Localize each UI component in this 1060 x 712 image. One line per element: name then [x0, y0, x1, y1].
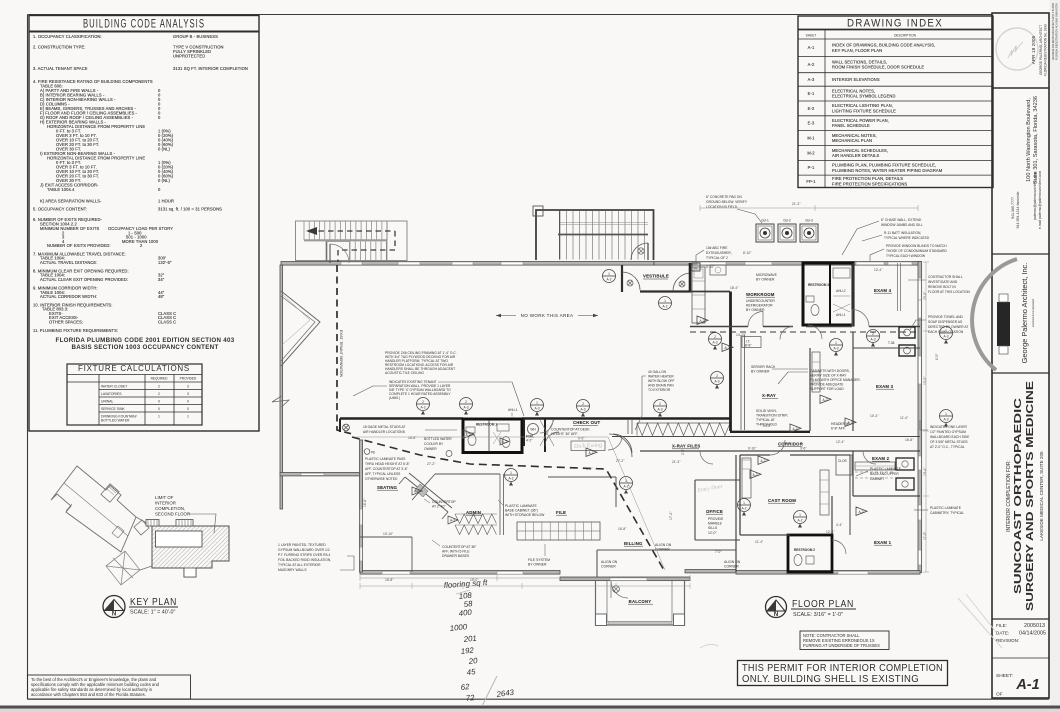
svg-text:SERVICE SINK: SERVICE SINK: [101, 407, 125, 411]
svg-text:A-2: A-2: [798, 519, 803, 523]
svg-text:MARBLE: MARBLE: [708, 522, 723, 526]
svg-text:2: 2: [465, 400, 467, 404]
svg-text:A-3: A-3: [658, 408, 663, 412]
svg-text:SURGERY AND SPORTS MEDICINE: SURGERY AND SPORTS MEDICINE: [1024, 381, 1036, 611]
svg-text:SUNCOAST ORTHOPAEDIC: SUNCOAST ORTHOPAEDIC: [1012, 397, 1024, 594]
svg-text:WINDOW JAMBS AND SILL: WINDOW JAMBS AND SILL: [881, 223, 923, 227]
svg-text:AFF, TYPICAL UNLESS: AFF, TYPICAL UNLESS: [365, 472, 401, 476]
svg-text:A-2: A-2: [742, 507, 747, 511]
svg-text:132’-5": 132’-5": [158, 260, 172, 265]
svg-text:12'-0": 12'-0": [708, 531, 717, 535]
svg-text:2: 2: [716, 374, 718, 378]
svg-text:Licensed & Incorporated: Licensed & Incorporated: [1031, 298, 1035, 327]
svg-text:(U465.): (U465.): [389, 396, 400, 400]
svg-text:SCALE: 3/16" = 1'-0": SCALE: 3/16" = 1'-0": [793, 612, 843, 618]
svg-text:ADMIN: ADMIN: [466, 510, 481, 515]
svg-text:6" CONCRETE PAD ON: 6" CONCRETE PAD ON: [706, 195, 742, 199]
svg-text:12'-4": 12'-4": [826, 530, 835, 534]
svg-text:2. CONSTRUCTION TYPE:: 2. CONSTRUCTION TYPE:: [33, 45, 86, 50]
svg-text:1: 1: [799, 513, 801, 517]
svg-text:CABINETS WITH DOORS,: CABINETS WITH DOORS,: [810, 369, 850, 373]
svg-text:CONTRACTOR SHALL: CONTRACTOR SHALL: [928, 275, 963, 279]
svg-text:0: 0: [158, 400, 160, 404]
svg-text:CORNER: CORNER: [724, 565, 739, 569]
svg-text:3'-0": 3'-0": [586, 467, 593, 471]
svg-text:LIMIT OF: LIMIT OF: [155, 495, 174, 500]
svg-text:16'-8": 16'-8": [905, 438, 914, 442]
svg-text:REVISION:: REVISION:: [996, 638, 1019, 643]
svg-text:A-2: A-2: [793, 427, 798, 431]
svg-text:WORKROOM: WORKROOM: [746, 292, 775, 297]
svg-text:OTHER SPACES:: OTHER SPACES:: [49, 319, 83, 324]
svg-text:8'-8": 8'-8": [745, 344, 751, 348]
svg-text:EXAM 4: EXAM 4: [874, 288, 892, 293]
svg-text:19'-0": 19'-0": [470, 578, 479, 582]
svg-text:Suite 301, Sarasota, Florida,: Suite 301, Sarasota, Florida, 34236: [1033, 96, 1039, 184]
svg-text:LOCATION IN FIELD.: LOCATION IN FIELD.: [706, 205, 738, 209]
svg-text:TYPICAL OF 2: TYPICAL OF 2: [706, 256, 728, 260]
svg-text:OTHERWISE NOTED: OTHERWISE NOTED: [365, 477, 398, 481]
svg-text:TO EXTERIOR: TO EXTERIOR: [648, 388, 671, 392]
svg-text:FIXTURE CALCULATIONS: FIXTURE CALCULATIONS: [78, 364, 190, 373]
svg-text:TYPICAL EACH WINDOW: TYPICAL EACH WINDOW: [886, 254, 926, 258]
svg-text:GROUND BELOW. VERIFY: GROUND BELOW. VERIFY: [706, 200, 748, 204]
svg-text:palermo@palermoarchitect.com: palermo@palermoarchitect.com: [1033, 172, 1037, 220]
svg-text:REMOVE BOLT IN: REMOVE BOLT IN: [928, 285, 956, 289]
svg-text:A-2: A-2: [761, 459, 766, 463]
svg-text:4'-2": 4'-2": [526, 439, 532, 443]
svg-text:0 (NL): 0 (NL): [158, 147, 171, 152]
svg-text:CLOS: CLOS: [838, 459, 847, 463]
svg-text:DRAWER BASES: DRAWER BASES: [442, 554, 470, 558]
svg-text:27'-2": 27'-2": [616, 459, 625, 463]
svg-text:GEORGE PALERMO, ARCHITECT: GEORGE PALERMO, ARCHITECT: [1039, 25, 1043, 75]
svg-text:VERIFY SIZE OF X-RAY: VERIFY SIZE OF X-RAY: [810, 374, 847, 378]
svg-text:8'-10": 8'-10": [743, 251, 752, 255]
svg-text:1: 1: [945, 329, 947, 333]
svg-text:CAST ROOM: CAST ROOM: [768, 498, 796, 503]
svg-text:TYPICAL AT: TYPICAL AT: [756, 418, 775, 422]
svg-text:941.954.4214 facsimile: 941.954.4214 facsimile: [1016, 192, 1020, 229]
svg-text:APR 18 2005: APR 18 2005: [1031, 35, 1037, 64]
svg-text:A-3: A-3: [581, 408, 586, 412]
svg-text:PLASTIC LAMINATE PASS: PLASTIC LAMINATE PASS: [365, 457, 406, 461]
svg-text:16'-8": 16'-8": [363, 498, 367, 507]
svg-text:400: 400: [458, 608, 473, 618]
svg-text:3131 sq. ft. / 100 = 31 PERSON: 3131 sq. ft. / 100 = 31 PERSONS: [158, 207, 222, 212]
svg-text:HEIGHT: 30" AFF.: HEIGHT: 30" AFF.: [551, 432, 578, 436]
svg-text:UNPROTECTED: UNPROTECTED: [173, 54, 205, 59]
svg-text:RESTROOM 3: RESTROOM 3: [808, 283, 829, 287]
svg-text:23'-0": 23'-0": [923, 291, 927, 300]
svg-text:2005013: 2005013: [1024, 623, 1045, 629]
svg-text:BY OWNER: BY OWNER: [751, 370, 770, 374]
svg-text:LIGHTING FIXTURE SCHEDULE: LIGHTING FIXTURE SCHEDULE: [832, 108, 896, 113]
svg-text:AHU-2: AHU-2: [836, 289, 846, 293]
svg-text:BALCONY: BALCONY: [629, 599, 652, 604]
svg-text:WITH BLOW OFF: WITH BLOW OFF: [648, 379, 675, 383]
svg-text:11'-4": 11'-4": [900, 416, 909, 420]
svg-text:0 (NL): 0 (NL): [158, 178, 171, 183]
svg-text:DESCRIPTION: DESCRIPTION: [894, 34, 916, 38]
svg-text:A-3: A-3: [450, 519, 455, 523]
svg-text:BASE AND UPPER: BASE AND UPPER: [870, 472, 899, 476]
svg-text:72: 72: [465, 693, 475, 703]
svg-text:EXAM 1: EXAM 1: [874, 540, 892, 545]
svg-text:GROUP B - BUSINESS: GROUP B - BUSINESS: [173, 34, 218, 39]
svg-text:3: 3: [187, 392, 189, 396]
svg-text:17'-4": 17'-4": [669, 511, 673, 520]
svg-text:MINIMUM NUMBER OF EXITS: MINIMUM NUMBER OF EXITS: [40, 226, 100, 231]
svg-text:0: 0: [187, 407, 189, 411]
svg-text:COUNTERTOP AT 36": COUNTERTOP AT 36": [442, 545, 477, 549]
svg-text:SCALE: 1" = 40'-0": SCALE: 1" = 40'-0": [130, 610, 176, 616]
svg-text:192: 192: [460, 646, 475, 656]
svg-text:16'-8": 16'-8": [385, 578, 394, 582]
svg-text:BILLING: BILLING: [624, 541, 643, 546]
svg-text:FILE:: FILE:: [996, 623, 1007, 628]
svg-text:FLORIDA PLUMBING CODE 2001 EDI: FLORIDA PLUMBING CODE 2001 EDITION SECTI…: [56, 337, 235, 344]
svg-text:A-3: A-3: [808, 77, 815, 82]
svg-text:ALIGN ON: ALIGN ON: [601, 560, 618, 564]
svg-text:OF: OF: [996, 692, 1003, 698]
svg-text:FILE SYSTEM: FILE SYSTEM: [528, 558, 550, 562]
svg-text:GU-2: GU-2: [783, 219, 791, 223]
svg-text:ALIGN ON: ALIGN ON: [655, 543, 672, 547]
svg-text:BOTTLED WATER: BOTTLED WATER: [424, 437, 452, 441]
svg-text:THOSE OF CONDOMINIUM STANDARD: THOSE OF CONDOMINIUM STANDARD: [886, 249, 948, 253]
svg-text:10'-4": 10'-4": [870, 414, 879, 418]
svg-text:2: 2: [158, 385, 160, 389]
svg-text:A-3: A-3: [421, 406, 426, 410]
svg-text:LAKESIDE MEDICAL CENTER, SUITE: LAKESIDE MEDICAL CENTER, SUITE 205: [1039, 451, 1044, 541]
svg-text:A-2: A-2: [589, 451, 594, 455]
svg-text:1: 1: [187, 415, 189, 419]
svg-text:ALIGN ON: ALIGN ON: [724, 560, 741, 564]
svg-text:NO WORK THIS AREA: NO WORK THIS AREA: [521, 313, 574, 318]
svg-text:CABINETRY, TYPICAL: CABINETRY, TYPICAL: [930, 511, 964, 515]
svg-text:FILMS WITH OFFICE MANAGER.: FILMS WITH OFFICE MANAGER.: [810, 378, 861, 382]
svg-text:PROVIDE ADEQUATE: PROVIDE ADEQUATE: [810, 383, 844, 387]
svg-text:3131 SQ FT. INTERIOR COMPLETIO: 3131 SQ FT. INTERIOR COMPLETION: [173, 66, 248, 71]
svg-text:10'-4": 10'-4": [923, 467, 927, 476]
svg-text:INTERIOR: INTERIOR: [155, 501, 176, 506]
svg-text:EXAM 2: EXAM 2: [872, 456, 890, 461]
svg-text:21'-3": 21'-3": [792, 202, 801, 206]
svg-text:9'-10": 9'-10": [748, 447, 757, 451]
svg-text:1000: 1000: [449, 622, 468, 633]
svg-text:A-3: A-3: [713, 341, 718, 345]
svg-text:A-3: A-3: [871, 338, 876, 342]
svg-text:AND DRAIN PAN: AND DRAIN PAN: [648, 384, 674, 388]
svg-text:E-1: E-1: [808, 91, 815, 96]
svg-text:BASE CABINET (36"): BASE CABINET (36"): [505, 509, 538, 513]
svg-text:1: 1: [608, 272, 610, 276]
svg-text:PLUMBING NOTES, WATER HEATER P: PLUMBING NOTES, WATER HEATER PIPING DIAG…: [832, 168, 943, 173]
svg-text:1: 1: [664, 299, 666, 303]
svg-text:K) AREA SEPARATION WALLS-: K) AREA SEPARATION WALLS-: [40, 199, 102, 204]
svg-text:A-3: A-3: [464, 406, 469, 410]
svg-text:SUPPORT FOR LOAD: SUPPORT FOR LOAD: [810, 387, 844, 391]
svg-text:R-11 BATT INSULATION,: R-11 BATT INSULATION,: [884, 231, 921, 235]
svg-text:KEY PLAN, FLOOR PLAN: KEY PLAN, FLOOR PLAN: [832, 48, 882, 53]
svg-text:FOIL BACKED RIGID INSULATION,: FOIL BACKED RIGID INSULATION,: [278, 558, 331, 562]
svg-text:SHEET: SHEET: [806, 34, 817, 38]
svg-text:AIR HANDLER LOCATIONS: AIR HANDLER LOCATIONS: [363, 430, 406, 434]
svg-text:AT 2'-0" O.C., TYPICAL: AT 2'-0" O.C., TYPICAL: [930, 445, 965, 449]
svg-text:AFF, WITH 5 FILE: AFF, WITH 5 FILE: [442, 550, 470, 554]
svg-text:BY OWNER: BY OWNER: [528, 563, 547, 567]
svg-text:ONLY. BUILDING SHELL IS EXISTI: ONLY. BUILDING SHELL IS EXISTING: [742, 674, 919, 685]
svg-text:E-2: E-2: [808, 106, 815, 111]
svg-text:THIS PERMIT FOR INTERIOR COMPL: THIS PERMIT FOR INTERIOR COMPLETION: [742, 663, 943, 674]
svg-text:45: 45: [466, 667, 476, 677]
svg-text:RESTROOM 2: RESTROOM 2: [794, 548, 815, 552]
svg-text:GYPSUM WALLBOARD OVER 1/2: GYPSUM WALLBOARD OVER 1/2: [278, 548, 330, 552]
svg-text:2: 2: [659, 402, 661, 406]
svg-text:1: 1: [158, 415, 160, 419]
svg-text:WATER HEATER: WATER HEATER: [648, 375, 674, 379]
svg-text:PROVIDE: PROVIDE: [708, 517, 724, 521]
svg-text:SEATING: SEATING: [377, 485, 398, 490]
svg-text:11'-4": 11'-4": [755, 540, 764, 544]
svg-text:A-2: A-2: [663, 305, 668, 309]
svg-text:MASONRY WALLS: MASONRY WALLS: [278, 568, 307, 572]
svg-text:SECOND FLOOR: SECOND FLOOR: [155, 512, 190, 517]
svg-text:REQUIRED: REQUIRED: [151, 377, 169, 381]
svg-text:2: 2: [714, 335, 716, 339]
svg-text:PROVIDED: PROVIDED: [180, 377, 197, 381]
svg-text:MICROWAVE: MICROWAVE: [756, 273, 778, 277]
svg-text:2: 2: [872, 332, 874, 336]
svg-text:PANEL SCHEDULE: PANEL SCHEDULE: [832, 123, 870, 128]
svg-text:SOAP DISPENSER AS: SOAP DISPENSER AS: [928, 320, 963, 324]
svg-text:OWNER: OWNER: [424, 447, 437, 451]
svg-text:A-2: A-2: [509, 477, 514, 481]
svg-text:ACOUSTIC TILE CEILING: ACOUSTIC TILE CEILING: [385, 371, 424, 375]
svg-text:OFFICE: OFFICE: [706, 509, 723, 514]
svg-text:20: 20: [467, 656, 478, 666]
svg-text:TYPICAL AT ALL EXTERIOR: TYPICAL AT ALL EXTERIOR: [278, 563, 321, 567]
svg-text:FLORIDA REGISTRATION No. 9999: FLORIDA REGISTRATION No. 9999: [1044, 24, 1048, 76]
svg-text:1: 1: [945, 412, 947, 416]
svg-text:EXAM 3: EXAM 3: [876, 384, 894, 389]
svg-text:10# ABC FIRE: 10# ABC FIRE: [706, 246, 728, 250]
svg-text:201: 201: [462, 634, 477, 644]
svg-text:1/2" PAINTED GYPSUM: 1/2" PAINTED GYPSUM: [930, 430, 966, 434]
svg-text:COUNTERTOP AT DESK: COUNTERTOP AT DESK: [551, 428, 590, 432]
svg-text:INDEX OF DRAWINGS, BUILDING CO: INDEX OF DRAWINGS, BUILDING CODE ANALYSI…: [832, 43, 935, 48]
svg-text:M-1: M-1: [807, 136, 815, 141]
svg-text:ACTUAL TRAVEL DISTANCE:: ACTUAL TRAVEL DISTANCE:: [40, 260, 98, 265]
svg-text:A-1: A-1: [808, 45, 815, 50]
svg-text:3: 3: [187, 385, 189, 389]
svg-text:ROOM FINISH SCHEDULE, DOOR SCH: ROOM FINISH SCHEDULE, DOOR SCHEDULE: [832, 65, 924, 70]
svg-text:WITH STORAGE BELOW: WITH STORAGE BELOW: [505, 513, 545, 517]
svg-text:INVESTIGATE AND: INVESTIGATE AND: [928, 280, 958, 284]
svg-text:SHEET:: SHEET:: [996, 673, 1013, 679]
svg-text:FILE: FILE: [556, 510, 566, 515]
svg-text:CABINET: CABINET: [870, 477, 884, 481]
svg-text:A-2: A-2: [502, 440, 507, 444]
svg-text:TRANSITION STRIP,: TRANSITION STRIP,: [756, 414, 788, 418]
svg-text:George Palermo Architect, Inc.: George Palermo Architect, Inc.: [1020, 263, 1029, 364]
svg-text:11'-0": 11'-0": [923, 531, 927, 540]
svg-text:11. PLUMBING FIXTURE REQUIREME: 11. PLUMBING FIXTURE REQUIREMENTS:: [33, 328, 118, 333]
svg-text:04/14/2005: 04/14/2005: [1019, 631, 1046, 637]
svg-text:2'-2": 2'-2": [681, 448, 685, 455]
svg-text:12'-4": 12'-4": [874, 268, 883, 272]
svg-text:AT 2'-10": AT 2'-10": [432, 505, 446, 509]
svg-text:10'-10": 10'-10": [383, 532, 394, 536]
svg-text:FLORIDA REGISTRATION NO 0000: FLORIDA REGISTRATION NO 0000 SARASOTA: [1055, 3, 1059, 60]
svg-text:A-1: A-1: [1015, 677, 1039, 693]
svg-text:1 LAYER PAINTED, TEXTURED: 1 LAYER PAINTED, TEXTURED: [278, 543, 326, 547]
svg-text:ACTUAL CORRIDOR WIDTH:: ACTUAL CORRIDOR WIDTH:: [40, 294, 97, 299]
svg-text:34": 34": [158, 277, 165, 282]
svg-text:18'-4": 18'-4": [730, 286, 739, 290]
svg-text:FLOOR PLAN: FLOOR PLAN: [792, 598, 854, 610]
svg-text:A-2: A-2: [725, 346, 730, 350]
svg-text:A-2: A-2: [753, 473, 758, 477]
svg-text:PROVIDE WINDOW BLINDS TO MATCH: PROVIDE WINDOW BLINDS TO MATCH: [886, 244, 947, 248]
svg-text:TYPICAL WHERE INDICATED: TYPICAL WHERE INDICATED: [884, 236, 930, 240]
svg-text:CORNER: CORNER: [655, 548, 670, 552]
svg-text:RESTROOM 1: RESTROOM 1: [476, 423, 497, 427]
svg-text:THRU HEAD HEIGHT AT 6'-8": THRU HEAD HEIGHT AT 6'-8": [365, 462, 410, 466]
svg-text:18'-8": 18'-8": [408, 436, 417, 440]
svg-text:A-2: A-2: [466, 433, 471, 437]
svg-text:CLASS C: CLASS C: [158, 319, 176, 324]
svg-text:PLASTIC LAMINATE: PLASTIC LAMINATE: [930, 506, 962, 510]
svg-text:UNDERCOUNTER: UNDERCOUNTER: [746, 299, 775, 303]
svg-text:N: N: [774, 612, 778, 618]
svg-text:M-2: M-2: [807, 150, 815, 155]
svg-text:2: 2: [582, 402, 584, 406]
svg-text:A-2: A-2: [700, 319, 705, 323]
svg-text:3. ACTUAL TENANT SPACE: 3. ACTUAL TENANT SPACE: [33, 66, 88, 71]
svg-text:SOLID VINYL: SOLID VINYL: [756, 409, 777, 413]
svg-text:P-1: P-1: [808, 165, 815, 170]
svg-text:TABLE 1004.4: TABLE 1004.4: [47, 187, 75, 192]
svg-text:6" CHASE WALL, EXTEND: 6" CHASE WALL, EXTEND: [881, 218, 922, 222]
svg-text:A-2: A-2: [823, 398, 828, 402]
svg-text:GEORGE PALERMO ARCHITECT APO: GEORGE PALERMO ARCHITECT APO 1 B 2005: [1051, 2, 1055, 60]
svg-text:4'-4": 4'-4": [836, 523, 843, 527]
svg-text:ELECTRICAL SYMBOL LEGEND: ELECTRICAL SYMBOL LEGEND: [832, 94, 896, 99]
svg-text:FURRING AT UNDERSIDE OF TRUSSE: FURRING AT UNDERSIDE OF TRUSSES: [803, 643, 880, 648]
svg-text:FLOOR AT THIS LOCATION: FLOOR AT THIS LOCATION: [928, 290, 971, 294]
svg-text:12'-4": 12'-4": [836, 440, 845, 444]
svg-text:AFF. COUNTERTOP AT 3'-6": AFF. COUNTERTOP AT 3'-6": [365, 467, 409, 471]
svg-text:NUMBER OF EXITS PROVIDED:: NUMBER OF EXITS PROVIDED:: [47, 243, 111, 248]
svg-text:FE: FE: [694, 267, 698, 271]
svg-text:FP-1: FP-1: [806, 179, 816, 184]
svg-text:X-RAY FILES: X-RAY FILES: [672, 444, 700, 449]
svg-text:1: 1: [536, 401, 538, 405]
svg-text:A-3: A-3: [715, 380, 720, 384]
svg-text:SERVER RACK: SERVER RACK: [751, 365, 776, 369]
svg-text:A-2: A-2: [607, 278, 612, 282]
svg-text:SILLS: SILLS: [708, 526, 718, 530]
svg-text:14'-10": 14'-10": [736, 333, 747, 337]
svg-text:MECHANICAL PLAN: MECHANICAL PLAN: [832, 138, 872, 143]
svg-text:0: 0: [187, 400, 189, 404]
svg-text:CHECK OUT: CHECK OUT: [573, 420, 601, 425]
svg-text:13'-0": 13'-0": [923, 376, 927, 385]
svg-text:A-2: A-2: [859, 510, 864, 514]
svg-text:X-RAY: X-RAY: [762, 393, 776, 398]
svg-text:A-3: A-3: [535, 407, 540, 411]
svg-text:A-3: A-3: [944, 335, 949, 339]
svg-text:WALLBOARD EACH SIDE: WALLBOARD EACH SIDE: [930, 435, 970, 439]
svg-text:T-36: T-36: [888, 341, 895, 345]
svg-text:LAVATORIES: LAVATORIES: [101, 392, 122, 396]
svg-text:GU-3: GU-3: [805, 219, 813, 223]
svg-text:1. OCCUPANCY CLASSIFICATION:: 1. OCCUPANCY CLASSIFICATION:: [33, 34, 102, 39]
svg-text:REFRIGERATOR: REFRIGERATOR: [746, 304, 773, 308]
svg-text:2: 2: [158, 392, 160, 396]
svg-text:OF 3 5/8" METAL STUDS: OF 3 5/8" METAL STUDS: [930, 440, 968, 444]
svg-text:A-2: A-2: [848, 421, 853, 425]
svg-text:16'-8": 16'-8": [618, 527, 627, 531]
svg-text:1: 1: [743, 501, 745, 505]
svg-text:E-3: E-3: [808, 121, 815, 126]
svg-text:ACTUAL CLEAR EXIT OPENING PROV: ACTUAL CLEAR EXIT OPENING PROVIDED:: [40, 277, 128, 282]
svg-text:COOLER BY: COOLER BY: [424, 442, 444, 446]
svg-text:VESTIBULE: VESTIBULE: [643, 274, 669, 279]
svg-text:N: N: [112, 612, 116, 618]
svg-text:PLASTIC LAMINATE: PLASTIC LAMINATE: [505, 504, 538, 508]
svg-text:BUILDING CODE ANALYSIS: BUILDING CODE ANALYSIS: [83, 19, 205, 31]
svg-text:accordance with Chapters 553: accordance with Chapters 553 and 633 of …: [31, 692, 146, 697]
svg-text:URINAL: URINAL: [101, 400, 114, 404]
svg-text:BASIS SECTION 1003 OCCUPANCY: BASIS SECTION 1003 OCCUPANCY CONTENT: [71, 344, 218, 351]
svg-text:PROVIDE TOWEL AND: PROVIDE TOWEL AND: [928, 315, 964, 319]
svg-text:100 North Washington Boulevard: 100 North Washington Boulevard,: [1026, 98, 1032, 182]
svg-text:1: 1: [835, 341, 837, 345]
svg-text:40 GALLON: 40 GALLON: [648, 370, 667, 374]
svg-text:AHU-1: AHU-1: [836, 313, 846, 317]
svg-text:BY OWNER: BY OWNER: [756, 278, 775, 282]
svg-text:EXTINGUISHER,: EXTINGUISHER,: [706, 251, 732, 255]
svg-text:A-3: A-3: [834, 347, 839, 351]
svg-text:BOTTLED WATER: BOTTLED WATER: [101, 419, 130, 423]
svg-text:COMPLETION,: COMPLETION,: [155, 506, 185, 511]
svg-text:DATE:: DATE:: [996, 631, 1009, 636]
svg-text:WH: WH: [530, 428, 536, 432]
svg-text:0: 0: [158, 407, 160, 411]
svg-text:FIRE PROTECTION SPECIFICATIONS: FIRE PROTECTION SPECIFICATIONS: [832, 181, 907, 186]
svg-text:1: 1: [510, 471, 512, 475]
svg-text:EXIST. TENANT SEPARATION: EXIST. TENANT SEPARATION: [339, 330, 343, 378]
svg-text:1 HOUR: 1 HOUR: [158, 199, 174, 204]
svg-text:8'-0": 8'-0": [935, 353, 939, 360]
svg-text:6'-10": 6'-10": [706, 265, 715, 269]
svg-text:P.T. FURRING STRIPS OVER R5.4: P.T. FURRING STRIPS OVER R5.4: [278, 553, 330, 557]
svg-text:PLASTIC LAMINATE: PLASTIC LAMINATE: [870, 467, 902, 471]
svg-text:INDICATES ONE LAYER: INDICATES ONE LAYER: [930, 425, 968, 429]
svg-text:GU-1: GU-1: [761, 219, 769, 223]
svg-text:INTERIOR ELEVATIONS: INTERIOR ELEVATIONS: [832, 77, 880, 82]
svg-text:62: 62: [460, 682, 470, 692]
svg-text:e-mail palermo@palermoarchite: e-mail palermo@palermoarchitect.com: [1038, 171, 1042, 229]
svg-text:PE: PE: [371, 451, 375, 455]
svg-text:941.365.7777: 941.365.7777: [1011, 197, 1015, 219]
svg-text:AHU-1: AHU-1: [508, 408, 518, 412]
svg-text:A-2: A-2: [808, 62, 815, 67]
svg-text:WATER CLOSET: WATER CLOSET: [101, 385, 127, 389]
